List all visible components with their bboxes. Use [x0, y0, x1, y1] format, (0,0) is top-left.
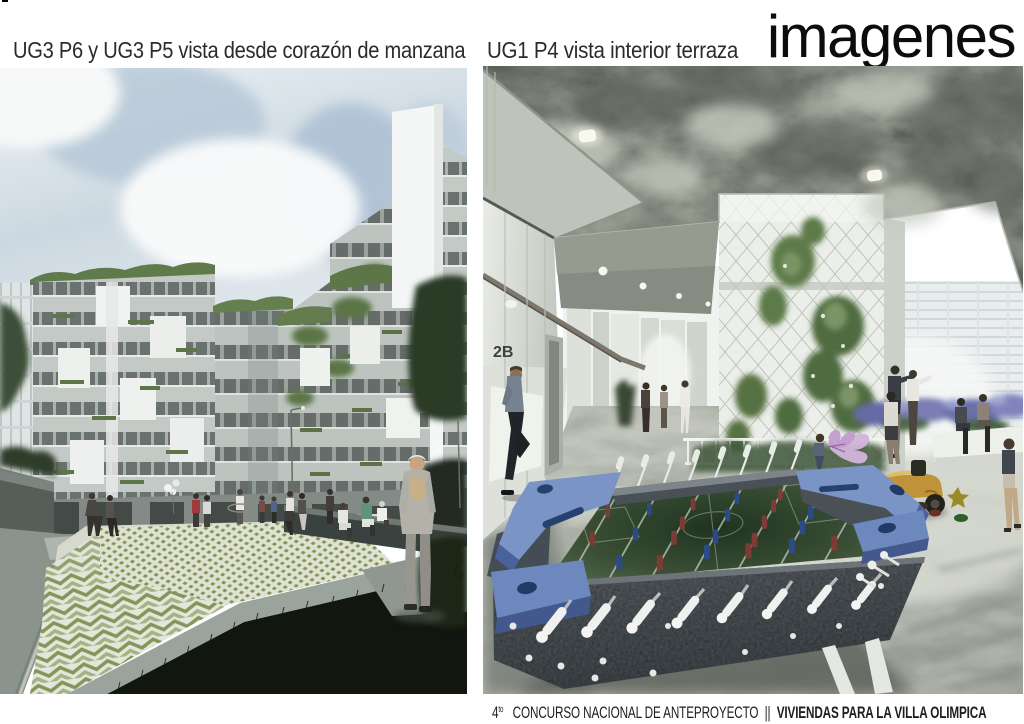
svg-text:2B: 2B: [493, 344, 513, 361]
